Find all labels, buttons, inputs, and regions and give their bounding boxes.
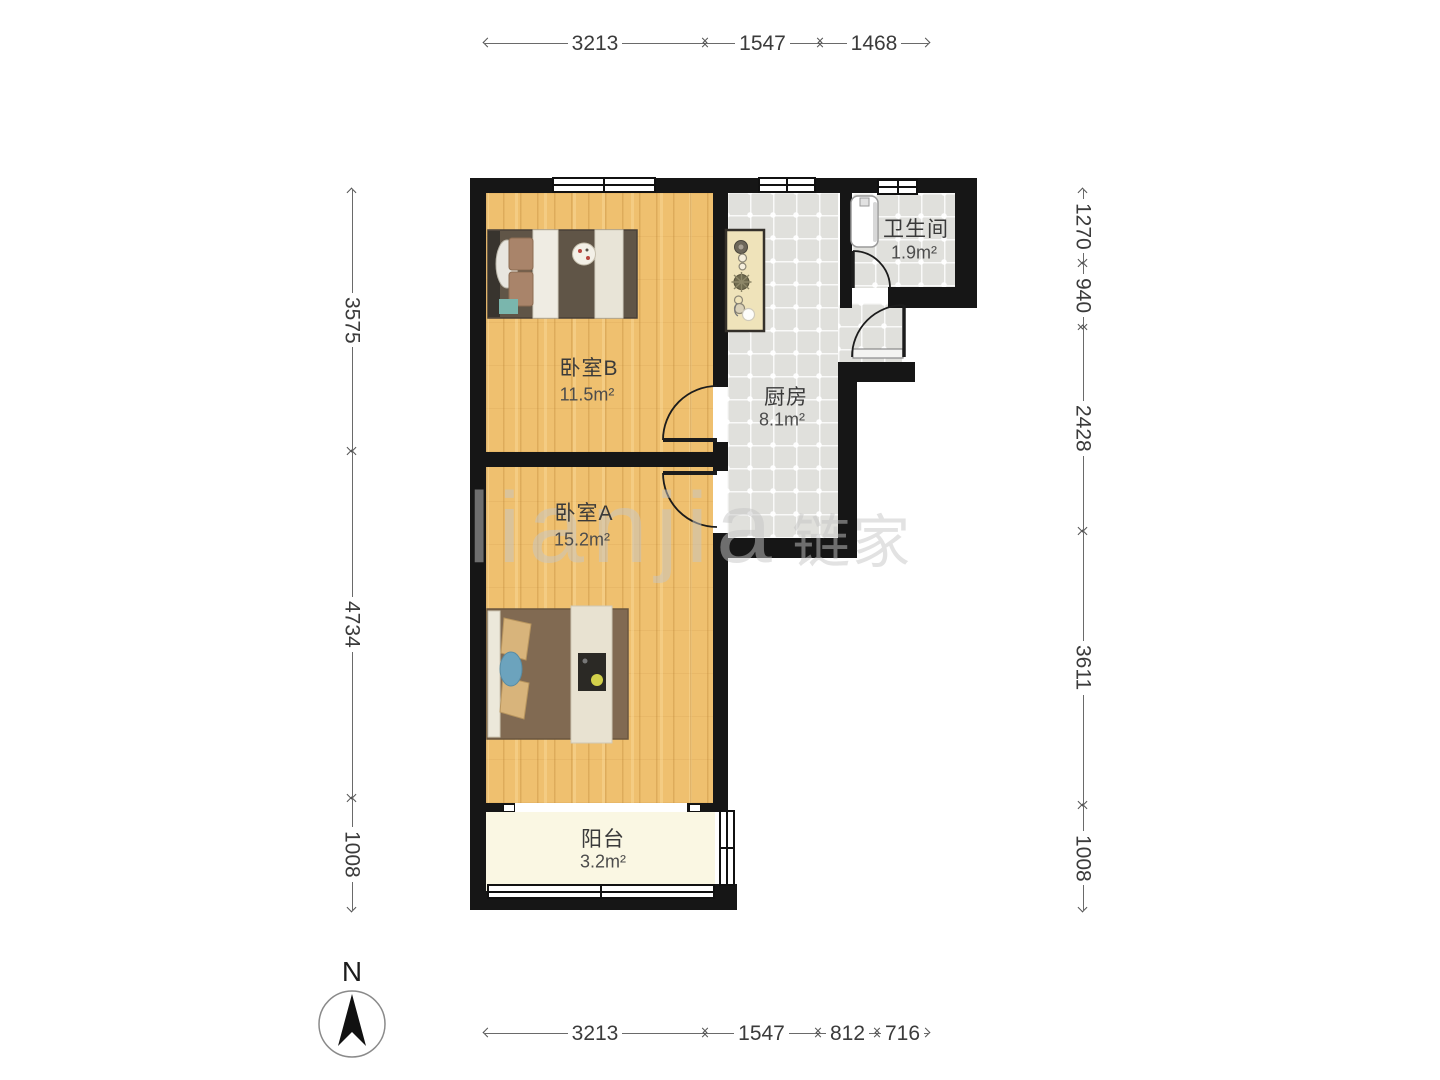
dimension-right-0: 1270 (1072, 190, 1094, 262)
dim-arrow-start (820, 43, 847, 44)
window-kitchen (758, 177, 816, 193)
dimension-top-0: 3213 (485, 32, 705, 54)
dimension-bottom-3: 716 (877, 1022, 928, 1044)
room-area-bedroom-a: 15.2m² (554, 530, 610, 551)
dim-value: 2428 (1073, 404, 1094, 453)
dim-value: 1008 (1073, 834, 1094, 883)
balcony-doorframe-right (689, 804, 701, 812)
dimension-right-1: 940 (1072, 264, 1094, 327)
window-bedroom-b (552, 177, 656, 193)
window-bathroom (877, 179, 918, 195)
dimension-bottom-0: 3213 (485, 1022, 705, 1044)
dimension-left-2: 1008 (341, 799, 363, 910)
room-area-kitchen: 8.1m² (759, 410, 805, 431)
dim-value: 940 (1073, 277, 1094, 314)
dim-arrow-start (352, 190, 353, 293)
dim-value: 1547 (738, 33, 787, 54)
watermark-latin: lianjia (468, 472, 780, 584)
balcony-doorframe-left (503, 804, 515, 812)
dimension-bottom-1: 1547 (705, 1022, 818, 1044)
dim-arrow-end (1083, 695, 1084, 804)
compass-icon (319, 991, 385, 1057)
room-area-bathroom: 1.9m² (891, 243, 937, 264)
dim-arrow-end (901, 43, 928, 44)
dimension-bottom-2: 812 (818, 1022, 877, 1044)
dim-arrow-start (818, 1033, 826, 1034)
dim-value: 3213 (571, 33, 620, 54)
room-label-balcony: 阳台 (581, 823, 625, 853)
lianjia-watermark: lianjia 链家 (468, 478, 912, 578)
dim-arrow-start (1083, 327, 1084, 401)
dim-arrow-start (485, 43, 568, 44)
dim-arrow-end (1083, 456, 1084, 530)
dim-arrow-start (877, 1033, 881, 1034)
dim-value: 4734 (342, 600, 363, 649)
dim-value: 1270 (1073, 202, 1094, 251)
dim-value: 1468 (850, 33, 899, 54)
dimension-right-3: 3611 (1072, 532, 1094, 804)
dim-value: 3575 (342, 296, 363, 345)
dimension-right-2: 2428 (1072, 327, 1094, 530)
dim-arrow-end (789, 1033, 818, 1034)
dim-arrow-start (352, 799, 353, 827)
dim-arrow-end (352, 347, 353, 450)
dim-value: 812 (829, 1023, 866, 1044)
dim-arrow-start (705, 1033, 734, 1034)
dim-arrow-start (1083, 806, 1084, 831)
floorplan-canvas: lianjia 链家 N 卧室B11.5m²卧室A15.2m²厨房8.1m²卫生… (0, 0, 1440, 1080)
dim-arrow-start (1083, 264, 1084, 274)
wall-balcony-corner-right (715, 884, 737, 910)
dimension-top-1: 1547 (705, 32, 820, 54)
dim-arrow-end (790, 43, 820, 44)
window-balcony-bottom (487, 884, 715, 899)
dim-arrow-start (1083, 532, 1084, 641)
room-area-balcony: 3.2m² (580, 852, 626, 873)
wall-bathroom-bottom (888, 287, 977, 308)
dimension-left-1: 4734 (341, 452, 363, 797)
dim-value: 1008 (342, 830, 363, 879)
window-balcony-right (719, 810, 735, 886)
room-label-kitchen: 厨房 (764, 381, 808, 411)
dimension-right-4: 1008 (1072, 806, 1094, 910)
dimension-left-0: 3575 (341, 190, 363, 450)
dim-arrow-end (352, 652, 353, 797)
dim-arrow-start (352, 452, 353, 597)
wall-mid-upper (713, 192, 728, 387)
room-label-bathroom: 卫生间 (883, 213, 949, 243)
room-label-bedroom-a: 卧室A (554, 497, 613, 527)
bedroom-b-floor (486, 192, 713, 452)
dim-arrow-end (622, 1033, 705, 1034)
wall-bedroom-divider (470, 452, 727, 467)
room-area-bedroom-b: 11.5m² (560, 385, 615, 406)
dimension-top-2: 1468 (820, 32, 928, 54)
dim-arrow-end (924, 1033, 928, 1034)
compass-north-label: N (342, 956, 362, 988)
dim-value: 716 (884, 1023, 921, 1044)
dim-arrow-start (1083, 190, 1084, 199)
dim-arrow-end (622, 43, 705, 44)
dim-arrow-end (1083, 885, 1084, 910)
entry-floor (838, 303, 902, 362)
dim-arrow-end (352, 882, 353, 910)
dim-value: 1547 (737, 1023, 786, 1044)
dim-value: 3213 (571, 1023, 620, 1044)
watermark-cjk: 链家 (792, 510, 912, 575)
dim-value: 3611 (1073, 644, 1094, 691)
dim-arrow-start (485, 1033, 568, 1034)
wall-kitchen-bath-sep (840, 178, 852, 308)
dim-arrow-start (705, 43, 735, 44)
room-label-bedroom-b: 卧室B (559, 352, 618, 382)
